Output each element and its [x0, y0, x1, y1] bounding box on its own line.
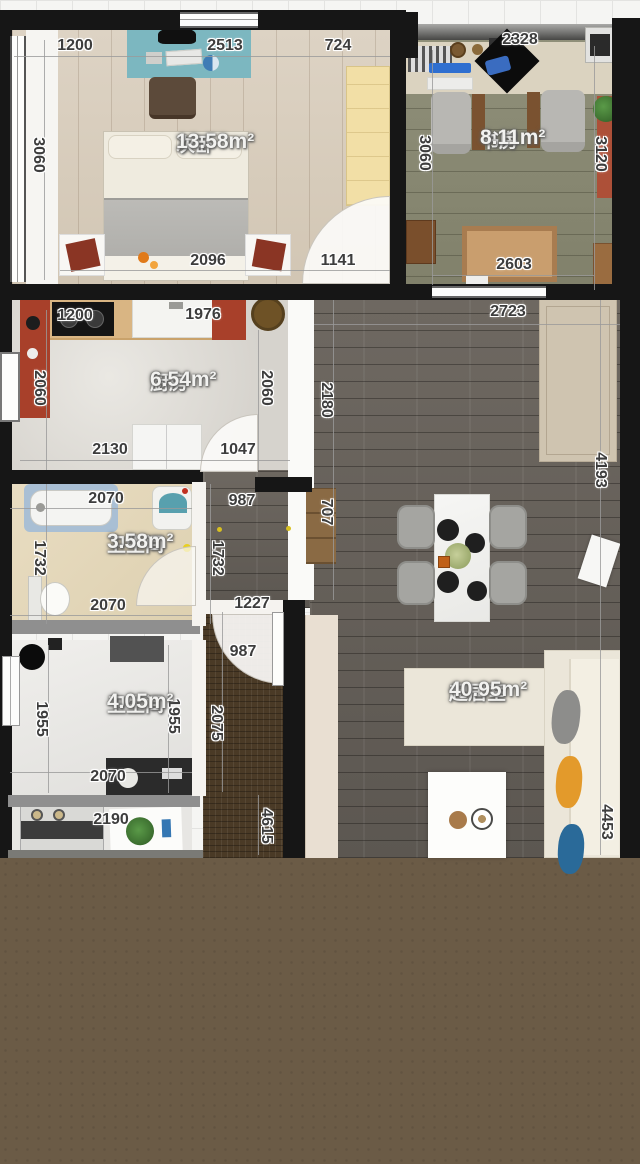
- wall: [283, 600, 305, 858]
- dimension-line: [20, 460, 290, 461]
- dimension-label: 3120: [591, 136, 609, 172]
- dimension-line: [14, 56, 390, 57]
- dimension-label: 2060: [30, 370, 48, 406]
- round-table[interactable]: [251, 297, 285, 331]
- washer-band: [21, 821, 103, 839]
- room-area: 40.95m²: [449, 678, 527, 702]
- dimension-label: 2513: [207, 37, 243, 55]
- plate: [467, 581, 487, 601]
- window: [432, 286, 546, 298]
- pillow: [108, 135, 172, 159]
- wall: [612, 18, 640, 298]
- coffee-cup-brown: [449, 811, 467, 829]
- dimension-label: 2190: [93, 811, 129, 829]
- washer-knob: [53, 809, 65, 821]
- dimension-label: 4615: [257, 808, 275, 844]
- dimension-label: 4453: [597, 804, 615, 840]
- plant: [126, 817, 155, 846]
- window: [10, 36, 26, 282]
- dimension-label: 2070: [88, 490, 124, 508]
- dimension-label: 4193: [591, 452, 609, 488]
- vanity-tray: [162, 768, 182, 779]
- faucet: [169, 302, 183, 309]
- window: [0, 352, 20, 422]
- kettle[interactable]: [26, 316, 40, 330]
- nightstand-rug: [252, 239, 286, 272]
- dimension-label: 2180: [317, 382, 335, 418]
- desk-clutter[interactable]: [166, 49, 203, 66]
- blue-globe[interactable]: [203, 55, 219, 71]
- wall-cabinet: [2, 656, 20, 726]
- coffee-cup-ring: [471, 808, 493, 830]
- door-leaf[interactable]: [272, 612, 284, 686]
- dining-chair[interactable]: [397, 561, 435, 605]
- lounge-chair[interactable]: [541, 90, 585, 152]
- keyboard[interactable]: [429, 63, 471, 73]
- dimension-label: 987: [229, 492, 256, 510]
- bedroom-deco-orange[interactable]: [138, 252, 149, 263]
- pc-screen: [590, 34, 610, 56]
- desk-paper[interactable]: [427, 77, 473, 90]
- wall: [0, 620, 12, 645]
- plate: [437, 519, 459, 541]
- dimension-label: 987: [230, 643, 257, 661]
- dimension-label: 707: [317, 499, 335, 526]
- floor-drain-black[interactable]: [19, 644, 45, 670]
- sink-bowl: [159, 493, 187, 513]
- dimension-label: 2603: [496, 256, 532, 274]
- nightstand-rug: [65, 238, 100, 272]
- dimension-line: [333, 300, 334, 600]
- dining-chair[interactable]: [397, 505, 435, 549]
- dimension-label: 3060: [29, 137, 47, 173]
- dimension-line: [60, 270, 390, 271]
- dimension-label: 1227: [234, 595, 270, 613]
- fridge[interactable]: [132, 424, 202, 470]
- dimension-label: 2075: [207, 705, 225, 741]
- living-sideboard[interactable]: [305, 615, 338, 858]
- fridge-divider: [166, 425, 167, 469]
- dimension-line: [600, 300, 601, 855]
- wall: [394, 12, 418, 58]
- orange-box: [438, 556, 450, 568]
- pc-tower[interactable]: [585, 27, 615, 63]
- bedroom-armchair[interactable]: [149, 77, 196, 119]
- dimension-label: 2130: [92, 441, 128, 459]
- room-area: 8.11m²: [480, 126, 545, 150]
- bedroom-deco-orange-small[interactable]: [150, 261, 158, 269]
- plate: [437, 571, 459, 593]
- toilet-bowl: [40, 582, 70, 616]
- dark-box[interactable]: [48, 638, 62, 650]
- wall: [620, 296, 640, 858]
- room-area: 3.58m²: [107, 530, 174, 554]
- dimension-label: 2096: [190, 252, 226, 270]
- indicator-dot: [286, 526, 291, 531]
- wood-tray[interactable]: [450, 42, 466, 58]
- laundry-bottom-edge: [8, 850, 203, 858]
- room-area: 6.54m²: [150, 368, 217, 392]
- dimension-label: 1141: [321, 252, 356, 270]
- dimension-line: [10, 615, 192, 616]
- blue-bottle: [162, 819, 172, 837]
- red-indicator: [182, 488, 188, 494]
- wall-lintel: [8, 795, 200, 807]
- dining-chair[interactable]: [489, 561, 527, 605]
- wardrobe[interactable]: [346, 66, 390, 206]
- desk-chair-black[interactable]: [158, 28, 196, 44]
- dimension-label: 1200: [57, 37, 93, 55]
- dimension-label: 1955: [32, 701, 50, 737]
- dimension-label: 1200: [57, 307, 93, 325]
- dimension-label: 1732: [208, 540, 226, 576]
- dimension-label: 1732: [30, 540, 48, 576]
- dimension-label: 3060: [415, 135, 433, 171]
- dimension-line: [314, 324, 620, 325]
- lounge-chair[interactable]: [431, 92, 471, 154]
- dimension-label: 724: [325, 37, 352, 55]
- wall-white: [192, 640, 206, 796]
- dimension-label: 2723: [490, 303, 526, 321]
- window: [180, 12, 258, 28]
- dimension-label: 2070: [90, 597, 126, 615]
- dimension-line: [222, 612, 223, 792]
- wall: [0, 470, 203, 484]
- room-area: 4.05m²: [107, 690, 174, 714]
- dimension-label: 2070: [90, 768, 126, 786]
- coffee-table[interactable]: [428, 772, 506, 858]
- dimension-label: 1047: [220, 441, 256, 459]
- dimension-label: 1976: [185, 306, 221, 324]
- kitchen-bowl[interactable]: [27, 348, 38, 359]
- washer-knob: [31, 809, 43, 821]
- room-area: 13.58m²: [176, 130, 254, 154]
- desk-clutter-small[interactable]: [146, 52, 162, 64]
- dimension-line: [432, 275, 594, 276]
- washing-machines[interactable]: [20, 804, 104, 854]
- dimension-label: 2328: [502, 31, 538, 49]
- canvas-bottom-fill: [0, 858, 640, 1164]
- wall-lintel: [8, 620, 200, 634]
- bed-foot: [104, 256, 248, 280]
- dimension-line: [10, 508, 192, 509]
- wall: [255, 477, 312, 492]
- indicator-dot: [217, 527, 222, 532]
- dining-chair[interactable]: [489, 505, 527, 549]
- dimension-label: 2060: [257, 370, 275, 406]
- floor-plan-canvas: 1200251372423282096114126031200197627232…: [0, 0, 640, 1164]
- bed-blanket: [104, 198, 248, 256]
- bath-mat-gray[interactable]: [110, 636, 164, 662]
